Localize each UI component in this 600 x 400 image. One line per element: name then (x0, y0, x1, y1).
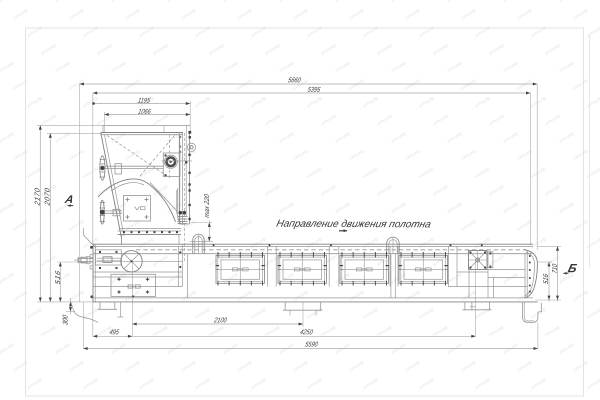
svg-text:1195: 1195 (137, 98, 151, 105)
svg-text:узтм.рф: узтм.рф (26, 25, 43, 38)
svg-text:узтм.рф: узтм.рф (96, 42, 113, 55)
svg-text:узтм.рф: узтм.рф (362, 377, 379, 390)
svg-text:узтм.рф: узтм.рф (320, 183, 337, 196)
svg-text:узтм.рф: узтм.рф (572, 148, 589, 161)
svg-text:узтм.рф: узтм.рф (530, 166, 547, 179)
svg-text:2070: 2070 (44, 187, 51, 207)
svg-text:узтм.рф: узтм.рф (502, 201, 519, 214)
svg-text:узтм.рф: узтм.рф (376, 324, 393, 337)
svg-text:узтм.рф: узтм.рф (264, 183, 281, 196)
svg-text:узтм.рф: узтм.рф (376, 42, 393, 55)
svg-text:узтм.рф: узтм.рф (292, 148, 309, 161)
svg-text:узтм.рф: узтм.рф (180, 359, 197, 372)
svg-text:узтм.рф: узтм.рф (208, 42, 225, 55)
svg-text:узтм.рф: узтм.рф (166, 60, 183, 73)
svg-text:узтм.рф: узтм.рф (376, 183, 393, 196)
svg-text:узтм.рф: узтм.рф (502, 271, 519, 284)
svg-text:5660: 5660 (287, 77, 301, 84)
svg-text:узтм.рф: узтм.рф (362, 166, 379, 179)
svg-text:узтм.рф: узтм.рф (390, 201, 407, 214)
svg-text:узтм.рф: узтм.рф (586, 25, 600, 38)
svg-text:узтм.рф: узтм.рф (250, 166, 267, 179)
svg-text:узтм.рф: узтм.рф (12, 218, 29, 231)
svg-text:516: 516 (543, 273, 550, 285)
svg-text:узтм.рф: узтм.рф (222, 130, 239, 143)
svg-text:узтм.рф: узтм.рф (0, 271, 15, 284)
svg-text:узтм.рф: узтм.рф (362, 306, 379, 319)
svg-text:узтм.рф: узтм.рф (474, 236, 491, 249)
svg-text:узтм.рф: узтм.рф (306, 95, 323, 108)
svg-text:узтм.рф: узтм.рф (0, 201, 15, 214)
svg-text:узтм.рф: узтм.рф (40, 42, 57, 55)
svg-text:1066: 1066 (137, 109, 151, 116)
svg-text:узтм.рф: узтм.рф (138, 306, 155, 319)
svg-text:узтм.рф: узтм.рф (138, 377, 155, 390)
svg-text:узтм.рф: узтм.рф (572, 359, 589, 372)
svg-text:узтм.рф: узтм.рф (96, 183, 113, 196)
svg-text:узтм.рф: узтм.рф (432, 183, 449, 196)
svg-text:узтм.рф: узтм.рф (544, 324, 561, 337)
svg-text:узтм.рф: узтм.рф (306, 377, 323, 390)
svg-text:узтм.рф: узтм.рф (446, 60, 463, 73)
svg-text:узтм.рф: узтм.рф (586, 166, 600, 179)
svg-text:узтм.рф: узтм.рф (12, 78, 29, 91)
svg-text:узтм.рф: узтм.рф (544, 113, 561, 126)
svg-text:узтм.рф: узтм.рф (530, 25, 547, 38)
svg-text:узтм.рф: узтм.рф (68, 359, 85, 372)
svg-text:узтм.рф: узтм.рф (54, 342, 71, 355)
svg-text:узтм.рф: узтм.рф (530, 377, 547, 390)
svg-text:узтм.рф: узтм.рф (208, 183, 225, 196)
svg-text:узтм.рф: узтм.рф (82, 95, 99, 108)
svg-text:узтм.рф: узтм.рф (432, 324, 449, 337)
svg-text:узтм.рф: узтм.рф (12, 7, 29, 20)
svg-text:узтм.рф: узтм.рф (278, 130, 295, 143)
svg-text:узтм.рф: узтм.рф (530, 306, 547, 319)
svg-text:узтм.рф: узтм.рф (250, 236, 267, 249)
svg-text:узтм.рф: узтм.рф (474, 25, 491, 38)
svg-text:узтм.рф: узтм.рф (502, 60, 519, 73)
svg-text:710: 710 (552, 263, 559, 274)
svg-text:узтм.рф: узтм.рф (586, 377, 600, 390)
svg-text:узтм.рф: узтм.рф (488, 42, 505, 55)
svg-text:узтм.рф: узтм.рф (82, 377, 99, 390)
svg-text:узтм.рф: узтм.рф (236, 218, 253, 231)
svg-text:узтм.рф: узтм.рф (586, 306, 600, 319)
svg-text:узтм.рф: узтм.рф (0, 60, 15, 73)
svg-text:узтм.рф: узтм.рф (222, 201, 239, 214)
svg-text:узтм.рф: узтм.рф (40, 113, 57, 126)
svg-text:узтм.рф: узтм.рф (0, 113, 1, 126)
svg-text:узтм.рф: узтм.рф (572, 289, 589, 302)
svg-text:узтм.рф: узтм.рф (124, 218, 141, 231)
svg-text:узтм.рф: узтм.рф (194, 95, 211, 108)
svg-text:2100: 2100 (212, 317, 227, 324)
svg-text:узтм.рф: узтм.рф (110, 271, 127, 284)
svg-text:узтм.рф: узтм.рф (404, 359, 421, 372)
svg-text:узтм.рф: узтм.рф (348, 359, 365, 372)
svg-text:узтм.рф: узтм.рф (278, 201, 295, 214)
svg-text:узтм.рф: узтм.рф (194, 377, 211, 390)
svg-text:узтм.рф: узтм.рф (68, 218, 85, 231)
svg-text:узтм.рф: узтм.рф (334, 130, 351, 143)
svg-text:узтм.рф: узтм.рф (82, 166, 99, 179)
svg-text:узтм.рф: узтм.рф (250, 25, 267, 38)
svg-text:узтм.рф: узтм.рф (292, 7, 309, 20)
svg-text:300: 300 (63, 314, 70, 326)
svg-text:узтм.рф: узтм.рф (544, 42, 561, 55)
svg-text:узтм.рф: узтм.рф (180, 7, 197, 20)
svg-text:узтм.рф: узтм.рф (418, 236, 435, 249)
svg-text:узтм.рф: узтм.рф (222, 0, 239, 3)
svg-text:узтм.рф: узтм.рф (138, 236, 155, 249)
svg-text:узтм.рф: узтм.рф (348, 289, 365, 302)
svg-text:узтм.рф: узтм.рф (460, 289, 477, 302)
svg-text:узтм.рф: узтм.рф (194, 25, 211, 38)
svg-text:узтм.рф: узтм.рф (404, 289, 421, 302)
svg-text:узтм.рф: узтм.рф (320, 113, 337, 126)
svg-text:узтм.рф: узтм.рф (236, 289, 253, 302)
svg-text:узтм.рф: узтм.рф (474, 306, 491, 319)
svg-text:узтм.рф: узтм.рф (558, 0, 575, 3)
svg-text:узтм.рф: узтм.рф (572, 7, 589, 20)
svg-text:узтм.рф: узтм.рф (68, 7, 85, 20)
svg-text:узтм.рф: узтм.рф (516, 7, 533, 20)
svg-text:узтм.рф: узтм.рф (250, 95, 267, 108)
svg-text:узтм.рф: узтм.рф (306, 166, 323, 179)
svg-text:узтм.рф: узтм.рф (54, 130, 71, 143)
svg-text:узтм.рф: узтм.рф (166, 271, 183, 284)
svg-text:узтм.рф: узтм.рф (194, 306, 211, 319)
svg-text:узтм.рф: узтм.рф (530, 236, 547, 249)
svg-text:узтм.рф: узтм.рф (124, 148, 141, 161)
svg-text:узтм.рф: узтм.рф (558, 201, 575, 214)
svg-text:узтм.рф: узтм.рф (0, 324, 1, 337)
svg-text:узтм.рф: узтм.рф (502, 130, 519, 143)
svg-text:узтм.рф: узтм.рф (0, 254, 1, 267)
svg-text:узтм.рф: узтм.рф (124, 7, 141, 20)
svg-text:узтм.рф: узтм.рф (0, 342, 15, 355)
svg-text:узтм.рф: узтм.рф (250, 306, 267, 319)
svg-text:узтм.рф: узтм.рф (586, 236, 600, 249)
svg-text:узтм.рф: узтм.рф (558, 60, 575, 73)
svg-text:узтм.рф: узтм.рф (320, 42, 337, 55)
svg-text:узтм.рф: узтм.рф (180, 289, 197, 302)
svg-text:узтм.рф: узтм.рф (376, 113, 393, 126)
svg-text:узтм.рф: узтм.рф (446, 0, 463, 3)
svg-text:узтм.рф: узтм.рф (0, 42, 1, 55)
svg-text:А: А (63, 194, 75, 206)
svg-text:узтм.рф: узтм.рф (474, 166, 491, 179)
svg-text:узтм.рф: узтм.рф (418, 166, 435, 179)
svg-text:узтм.рф: узтм.рф (418, 95, 435, 108)
svg-text:узтм.рф: узтм.рф (390, 60, 407, 73)
svg-text:узтм.рф: узтм.рф (362, 236, 379, 249)
svg-text:узтм.рф: узтм.рф (306, 25, 323, 38)
svg-text:узтм.рф: узтм.рф (208, 113, 225, 126)
svg-text:узтм.рф: узтм.рф (26, 377, 43, 390)
svg-text:узтм.рф: узтм.рф (488, 183, 505, 196)
svg-text:узтм.рф: узтм.рф (586, 95, 600, 108)
svg-text:5395: 5395 (307, 87, 321, 94)
svg-text:2170: 2170 (34, 187, 41, 207)
svg-text:узтм.рф: узтм.рф (418, 377, 435, 390)
svg-text:узтм.рф: узтм.рф (460, 7, 477, 20)
svg-text:узтм.рф: узтм.рф (236, 148, 253, 161)
svg-text:узтм.рф: узтм.рф (474, 95, 491, 108)
svg-text:узтм.рф: узтм.рф (432, 113, 449, 126)
svg-text:узтм.рф: узтм.рф (40, 324, 57, 337)
svg-text:узтм.рф: узтм.рф (418, 25, 435, 38)
svg-text:узтм.рф: узтм.рф (68, 148, 85, 161)
svg-text:узтм.рф: узтм.рф (558, 130, 575, 143)
svg-text:узтм.рф: узтм.рф (502, 0, 519, 3)
svg-text:узтм.рф: узтм.рф (460, 148, 477, 161)
svg-text:узтм.рф: узтм.рф (26, 95, 43, 108)
svg-text:узтм.рф: узтм.рф (348, 7, 365, 20)
svg-text:узтм.рф: узтм.рф (54, 60, 71, 73)
svg-text:узтм.рф: узтм.рф (166, 0, 183, 3)
svg-text:узтм.рф: узтм.рф (264, 42, 281, 55)
svg-text:495: 495 (109, 329, 120, 336)
svg-text:4250: 4250 (299, 329, 313, 336)
svg-text:узтм.рф: узтм.рф (264, 113, 281, 126)
svg-text:узтм.рф: узтм.рф (404, 148, 421, 161)
svg-text:узтм.рф: узтм.рф (236, 359, 253, 372)
svg-text:узтм.рф: узтм.рф (264, 324, 281, 337)
svg-text:узтм.рф: узтм.рф (390, 0, 407, 3)
svg-text:516: 516 (55, 269, 62, 285)
svg-text:узтм.рф: узтм.рф (390, 130, 407, 143)
svg-text:узтм.рф: узтм.рф (124, 359, 141, 372)
svg-text:узтм.рф: узтм.рф (12, 148, 29, 161)
svg-text:узтм.рф: узтм.рф (110, 60, 127, 73)
svg-text:узтм.рф: узтм.рф (334, 60, 351, 73)
svg-text:Направление движения полотна: Направление движения полотна (275, 219, 432, 231)
svg-text:узтм.рф: узтм.рф (334, 201, 351, 214)
svg-text:узтм.рф: узтм.рф (236, 7, 253, 20)
svg-text:узтм.рф: узтм.рф (292, 359, 309, 372)
svg-text:узтм.рф: узтм.рф (306, 236, 323, 249)
svg-text:узтм.рф: узтм.рф (0, 130, 15, 143)
svg-text:узтм.рф: узтм.рф (516, 359, 533, 372)
svg-text:узтм.рф: узтм.рф (572, 218, 589, 231)
svg-text:узтм.рф: узтм.рф (54, 0, 71, 3)
svg-text:узтм.рф: узтм.рф (26, 306, 43, 319)
svg-text:узтм.рф: узтм.рф (152, 254, 169, 267)
svg-text:узтм.рф: узтм.рф (334, 0, 351, 3)
svg-text:узтм.рф: узтм.рф (250, 377, 267, 390)
svg-text:узтм.рф: узтм.рф (12, 359, 29, 372)
svg-text:узтм.рф: узтм.рф (110, 0, 127, 3)
svg-text:узтм.рф: узтм.рф (488, 113, 505, 126)
svg-text:узтм.рф: узтм.рф (138, 166, 155, 179)
svg-text:узтм.рф: узтм.рф (362, 25, 379, 38)
svg-text:узтм.рф: узтм.рф (320, 324, 337, 337)
svg-text:узтм.рф: узтм.рф (572, 78, 589, 91)
svg-text:узтм.рф: узтм.рф (82, 25, 99, 38)
svg-text:узтм.рф: узтм.рф (138, 25, 155, 38)
svg-text:узтм.рф: узтм.рф (40, 254, 57, 267)
svg-text:узтм.рф: узтм.рф (488, 324, 505, 337)
svg-text:узтм.рф: узтм.рф (362, 95, 379, 108)
svg-text:узтм.рф: узтм.рф (432, 42, 449, 55)
svg-text:узтм.рф: узтм.рф (544, 183, 561, 196)
svg-text:узтм.рф: узтм.рф (222, 60, 239, 73)
svg-text:узтм.рф: узтм.рф (152, 324, 169, 337)
svg-text:узтм.рф: узтм.рф (446, 130, 463, 143)
svg-text:узтм.рф: узтм.рф (460, 218, 477, 231)
svg-text:узтм.рф: узтм.рф (0, 183, 1, 196)
svg-text:узтм.рф: узтм.рф (0, 0, 15, 3)
svg-text:узтм.рф: узтм.рф (12, 289, 29, 302)
svg-text:узтм.рф: узтм.рф (278, 60, 295, 73)
svg-text:узтм.рф: узтм.рф (446, 201, 463, 214)
svg-text:5590: 5590 (304, 341, 318, 348)
svg-text:узтм.рф: узтм.рф (418, 306, 435, 319)
svg-text:узтм.рф: узтм.рф (222, 271, 239, 284)
svg-text:узтм.рф: узтм.рф (530, 95, 547, 108)
svg-text:узтм.рф: узтм.рф (404, 7, 421, 20)
svg-text:узтм.рф: узтм.рф (474, 377, 491, 390)
svg-text:max 220: max 220 (204, 193, 211, 218)
svg-text:узтм.рф: узтм.рф (488, 254, 505, 267)
svg-text:узтм.рф: узтм.рф (194, 166, 211, 179)
svg-text:узтм.рф: узтм.рф (460, 359, 477, 372)
svg-text:узтм.рф: узтм.рф (348, 148, 365, 161)
svg-text:узтм.рф: узтм.рф (292, 289, 309, 302)
svg-text:узтм.рф: узтм.рф (278, 0, 295, 3)
svg-text:узтм.рф: узтм.рф (152, 42, 169, 55)
svg-text:узтм.рф: узтм.рф (558, 342, 575, 355)
svg-text:узтм.рф: узтм.рф (208, 324, 225, 337)
